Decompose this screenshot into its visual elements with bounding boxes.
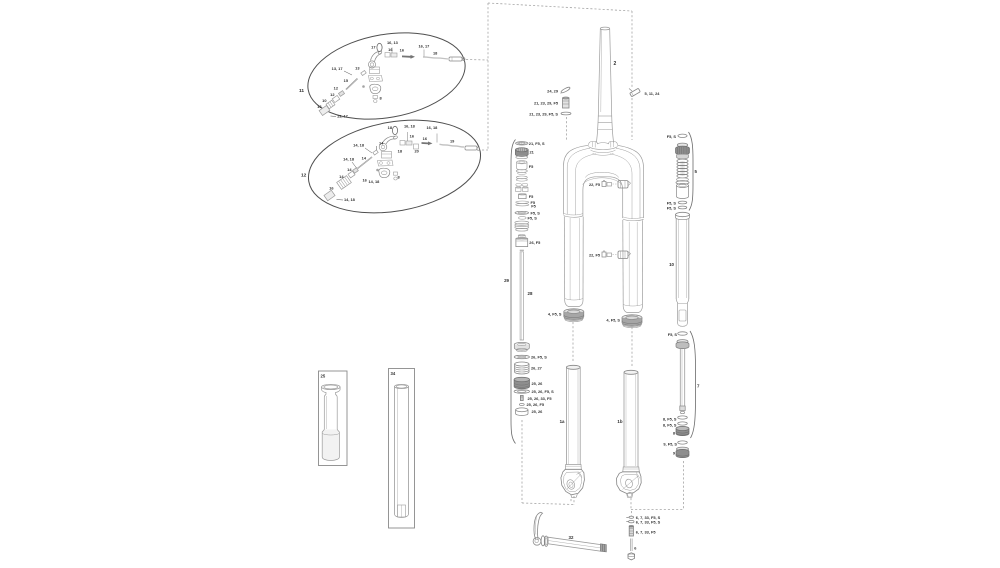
svg-text:F5, S: F5, S bbox=[667, 206, 677, 211]
svg-text:21, 23, 29, F5: 21, 23, 29, F5 bbox=[534, 101, 559, 106]
svg-text:25, 26, F5, S: 25, 26, F5, S bbox=[532, 389, 555, 394]
svg-text:10: 10 bbox=[322, 98, 326, 103]
svg-text:34: 34 bbox=[391, 371, 396, 376]
svg-text:16, 13: 16, 13 bbox=[387, 40, 399, 45]
svg-text:16, 18: 16, 18 bbox=[404, 124, 416, 129]
svg-text:21, F5, S: 21, F5, S bbox=[529, 141, 545, 146]
svg-text:12: 12 bbox=[301, 173, 307, 179]
svg-text:25, 26, 33, F5: 25, 26, 33, F5 bbox=[528, 396, 553, 401]
svg-text:28: 28 bbox=[528, 291, 533, 296]
svg-text:6, 7, 33, F5, S: 6, 7, 33, F5, S bbox=[636, 519, 661, 524]
svg-text:16, 17: 16, 17 bbox=[419, 44, 430, 49]
svg-text:8, F5, S: 8, F5, S bbox=[663, 423, 677, 428]
svg-text:26, 27: 26, 27 bbox=[531, 366, 542, 371]
svg-text:F5, S: F5, S bbox=[528, 215, 538, 220]
svg-text:F5, S: F5, S bbox=[668, 332, 678, 337]
svg-text:4, F5, S: 4, F5, S bbox=[548, 312, 562, 317]
svg-text:4, F5, S: 4, F5, S bbox=[606, 318, 620, 323]
svg-text:5, 11, 24: 5, 11, 24 bbox=[645, 91, 661, 96]
svg-text:25, 26: 25, 26 bbox=[532, 409, 544, 414]
svg-text:13, 17: 13, 17 bbox=[337, 114, 348, 119]
svg-text:32: 32 bbox=[569, 535, 574, 540]
svg-text:1a: 1a bbox=[560, 419, 565, 424]
svg-text:29: 29 bbox=[504, 278, 509, 283]
svg-text:9, F5, S: 9, F5, S bbox=[663, 442, 677, 447]
svg-text:20: 20 bbox=[415, 149, 419, 154]
svg-text:17: 17 bbox=[371, 45, 375, 50]
svg-text:22, F5: 22, F5 bbox=[589, 253, 601, 258]
svg-text:26, F5, S: 26, F5, S bbox=[531, 355, 547, 360]
svg-text:F5, S: F5, S bbox=[667, 134, 677, 139]
svg-text:6, 7, 33, F5: 6, 7, 33, F5 bbox=[636, 530, 657, 535]
svg-text:14, 18: 14, 18 bbox=[343, 157, 355, 162]
svg-text:8, F5, S: 8, F5, S bbox=[663, 417, 677, 422]
svg-text:10: 10 bbox=[669, 262, 674, 267]
svg-text:24, 29: 24, 29 bbox=[547, 89, 559, 94]
svg-text:11: 11 bbox=[299, 88, 304, 94]
svg-text:2: 2 bbox=[614, 61, 617, 67]
svg-text:25, 26: 25, 26 bbox=[532, 381, 544, 386]
svg-text:25, 26, F5: 25, 26, F5 bbox=[527, 402, 545, 407]
svg-text:16, 18: 16, 18 bbox=[427, 125, 439, 130]
svg-text:21, 23, 29, F5, S: 21, 23, 29, F5, S bbox=[529, 112, 558, 117]
svg-text:26, F5: 26, F5 bbox=[529, 240, 541, 245]
svg-text:22, F5: 22, F5 bbox=[589, 182, 601, 187]
svg-text:14, 18: 14, 18 bbox=[353, 143, 365, 148]
svg-text:25: 25 bbox=[321, 374, 326, 379]
svg-text:14, 18: 14, 18 bbox=[344, 197, 356, 202]
svg-text:14, 18: 14, 18 bbox=[369, 179, 381, 184]
svg-text:1b: 1b bbox=[617, 419, 622, 424]
svg-text:13, 17: 13, 17 bbox=[332, 66, 343, 71]
